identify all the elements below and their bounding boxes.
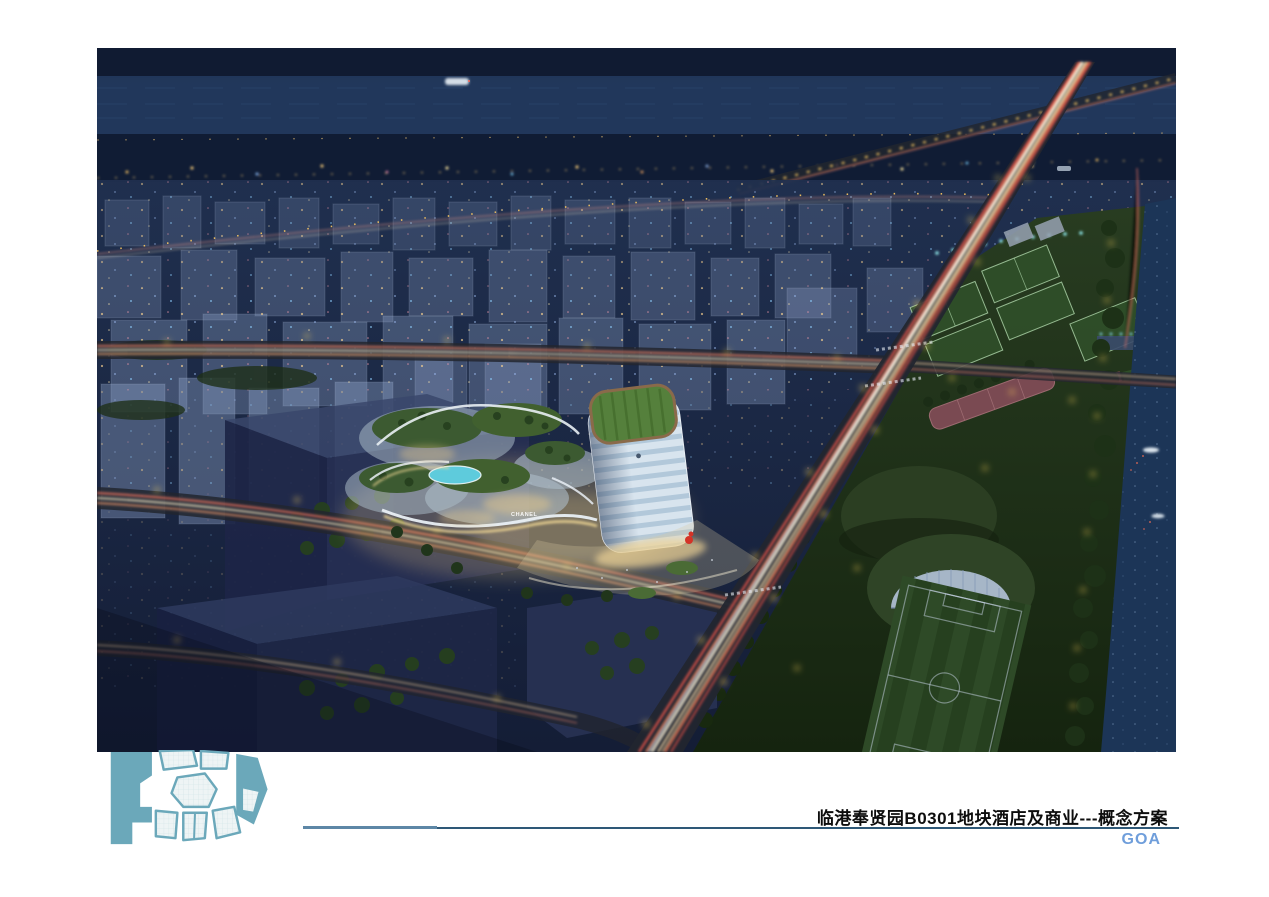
night-aerial-scene: CHANEL (97, 48, 1176, 752)
logo-solid-left (111, 752, 152, 844)
brand-goa: GOA (1122, 831, 1161, 849)
masterplan-logo (104, 750, 290, 848)
slide-title: 临港奉贤园B0301地块酒店及商业---概念方案 (817, 804, 1168, 829)
presentation-slide: CHANEL (0, 0, 1269, 897)
architectural-rendering: CHANEL (97, 48, 1176, 752)
divider-thick (303, 826, 437, 829)
logo-plot-cells (156, 750, 240, 840)
distant-ship (445, 78, 469, 85)
storefront-sign: CHANEL (511, 512, 538, 518)
distant-boat (1057, 166, 1071, 171)
goa-masterplan-logo-graphic (104, 750, 290, 848)
